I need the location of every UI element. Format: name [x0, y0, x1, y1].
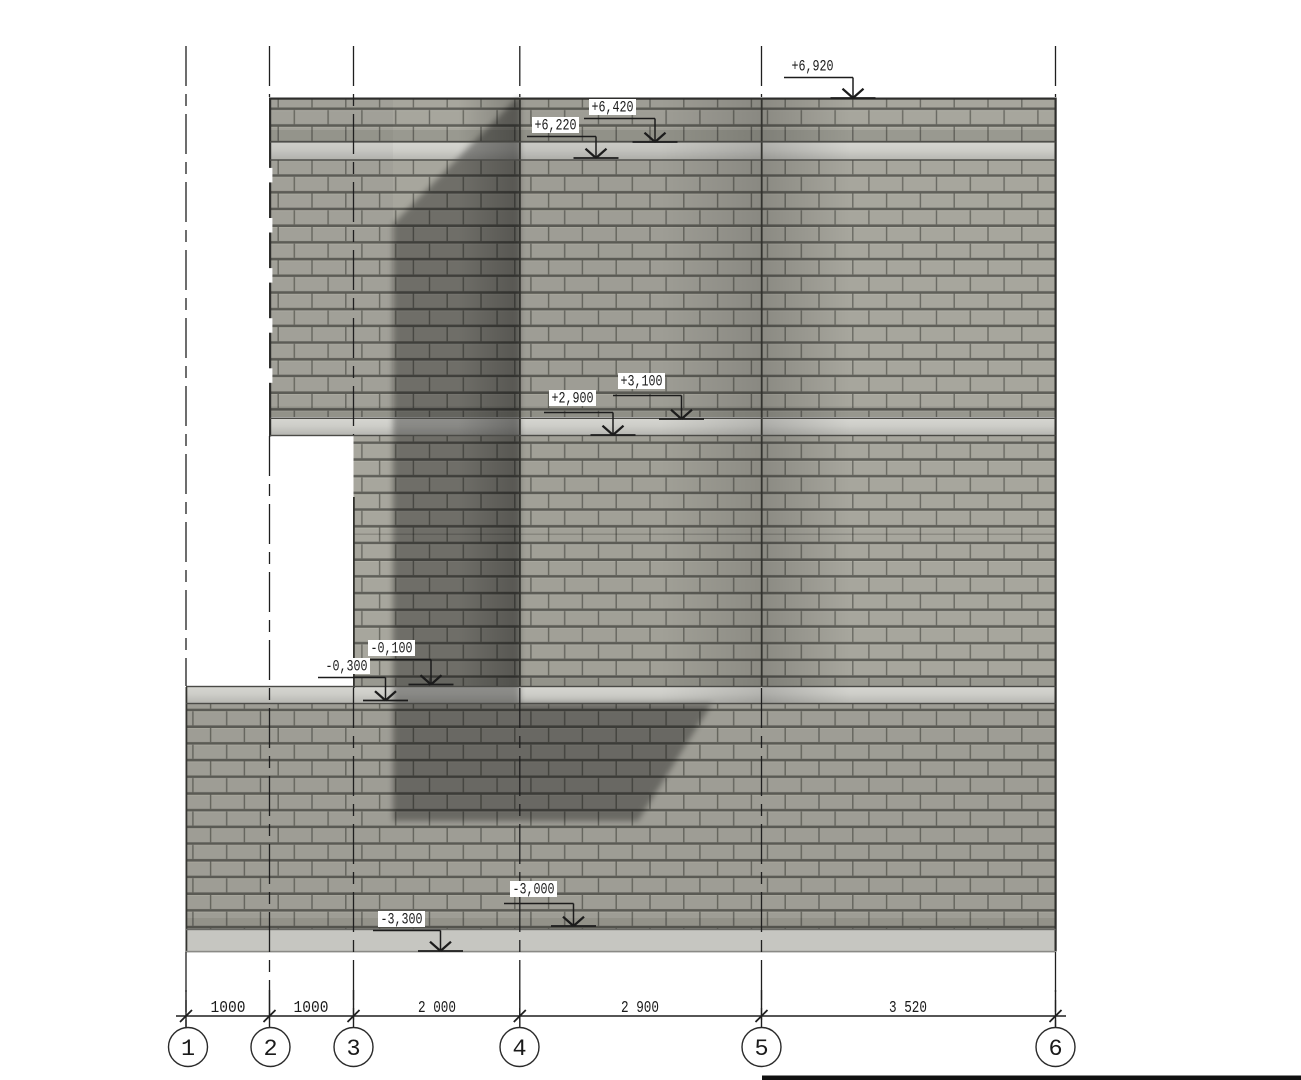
svg-text:5: 5 [754, 1036, 768, 1063]
svg-text:2: 2 [263, 1036, 277, 1063]
svg-text:+6,220: +6,220 [535, 117, 577, 135]
svg-text:+6,920: +6,920 [792, 58, 834, 76]
svg-text:2 000: 2 000 [418, 998, 456, 1017]
svg-text:-3,000: -3,000 [513, 881, 555, 899]
svg-text:3 520: 3 520 [889, 998, 927, 1017]
svg-text:1000: 1000 [294, 998, 329, 1017]
svg-text:+2,900: +2,900 [552, 390, 594, 408]
svg-text:6: 6 [1048, 1036, 1062, 1063]
svg-text:+3,100: +3,100 [621, 373, 663, 391]
svg-text:1000: 1000 [211, 998, 246, 1017]
svg-text:-0,100: -0,100 [371, 640, 413, 658]
svg-text:1: 1 [181, 1036, 195, 1063]
svg-text:2 900: 2 900 [621, 998, 659, 1017]
svg-text:-3,300: -3,300 [381, 911, 423, 929]
svg-text:3: 3 [346, 1036, 360, 1063]
svg-text:4: 4 [512, 1036, 526, 1063]
svg-text:+6,420: +6,420 [592, 99, 634, 117]
svg-text:-0,300: -0,300 [326, 658, 368, 676]
